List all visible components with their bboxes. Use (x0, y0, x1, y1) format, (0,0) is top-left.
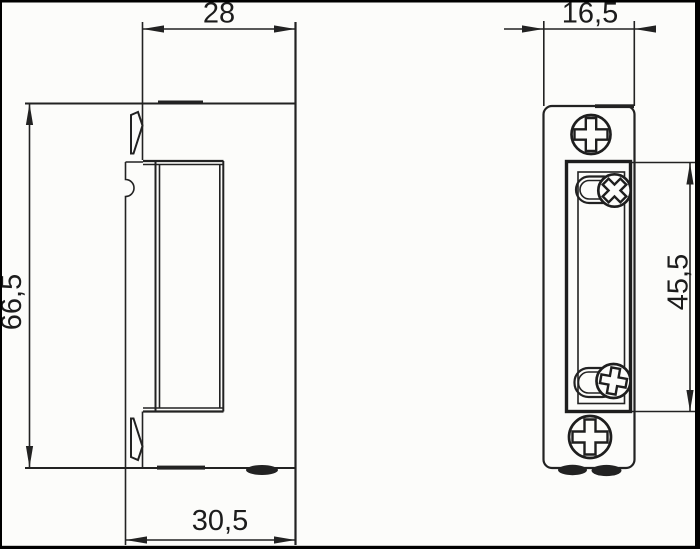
dim-overall-height-label: 66,5 (0, 274, 28, 330)
dim-overall-depth-label: 30,5 (192, 505, 248, 537)
arrowhead-right (274, 25, 296, 32)
dimension-overall-height: 66,5 (0, 104, 33, 468)
top-edge-dash (158, 101, 203, 105)
front-foot-pad-right (592, 465, 622, 476)
dim-opening-height-label: 45,5 (663, 254, 695, 310)
strike-body (143, 161, 224, 412)
arrowhead-right (274, 536, 296, 543)
arrowhead-bottom (686, 390, 693, 412)
front-view: 16,5 45,5 (504, 0, 699, 476)
front-foot-pad-left (558, 465, 587, 475)
border-top (0, 0, 700, 3)
dim-faceplate-width-label: 16,5 (562, 0, 618, 30)
dim-body-width-label: 28 (203, 0, 235, 30)
top-spring-clip (131, 112, 143, 154)
dimension-opening-height: 45,5 (631, 163, 700, 412)
dimension-overall-depth: 30,5 (126, 468, 296, 545)
drawing-canvas: 28 66,5 30,5 (0, 0, 700, 549)
dimension-faceplate-width: 16,5 (504, 0, 656, 106)
arrowhead-left (522, 25, 544, 32)
strike-dimensional-drawing: 28 66,5 30,5 (0, 0, 700, 549)
top-mounting-screw (572, 115, 611, 154)
bottom-edge-dash (157, 466, 205, 470)
bottom-adjustment-slot (575, 364, 631, 398)
arrowhead-bottom (26, 446, 33, 468)
top-adjustment-slot (576, 173, 632, 208)
arrowhead-right (635, 25, 657, 32)
arrowhead-left (143, 25, 165, 32)
bottom-mounting-screw (569, 416, 611, 458)
faceplate-top-dash (595, 104, 634, 108)
arrowhead-top (686, 163, 693, 185)
side-view-foot-pad (246, 465, 278, 475)
arrowhead-top (26, 104, 33, 126)
image-border (0, 0, 700, 549)
arrowhead-left (126, 536, 148, 543)
border-right (695, 0, 700, 549)
bottom-spring-clip (131, 419, 143, 461)
border-left (0, 0, 2, 549)
side-view: 28 66,5 30,5 (0, 0, 296, 545)
dimension-body-width: 28 (143, 0, 296, 160)
